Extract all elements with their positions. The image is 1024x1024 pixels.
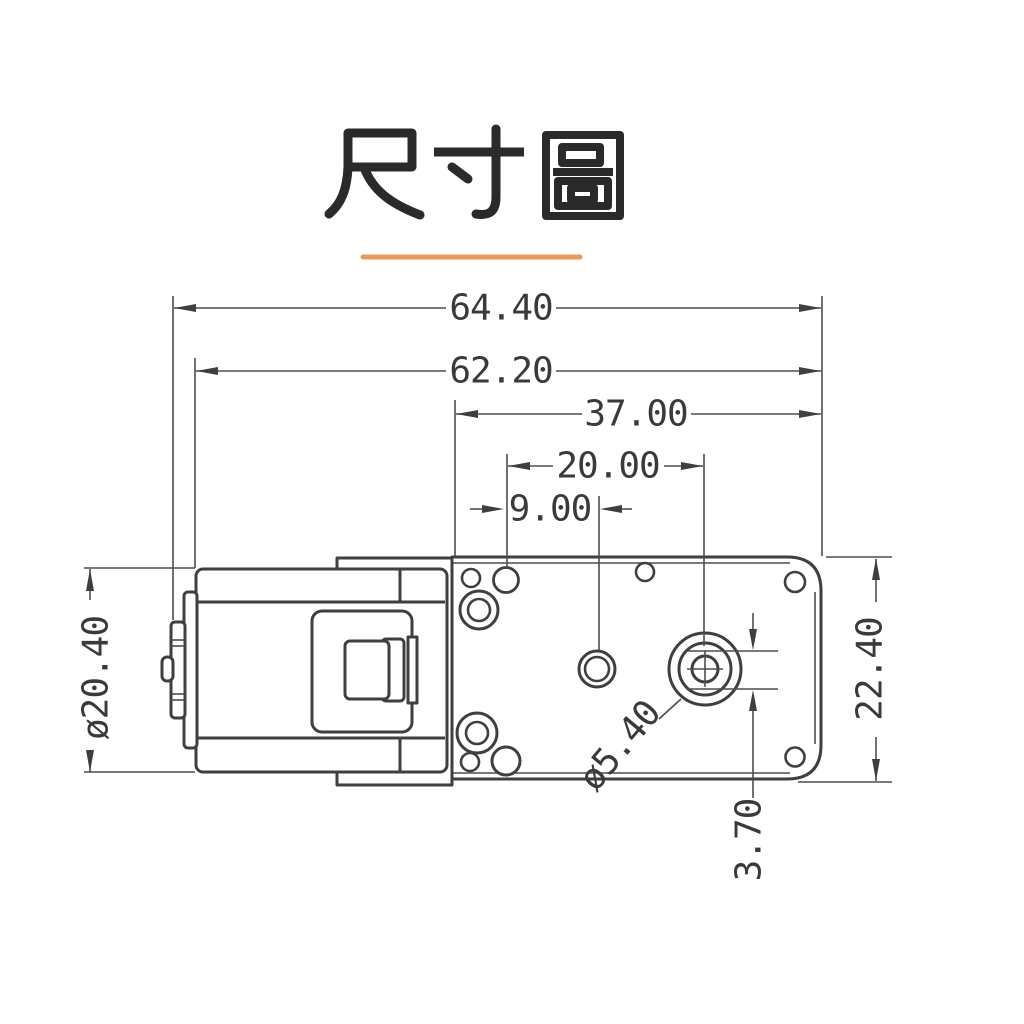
motor-side-view <box>162 558 452 785</box>
dim-hole-to-gear-center: 9.00 <box>470 489 632 530</box>
drawing-canvas: 64.40 62.20 37.00 20.00 <box>0 0 1024 1024</box>
dim-plate-height: 22.40 <box>850 558 891 781</box>
dim-label-shaft-to-gear-center: 20.00 <box>556 446 659 487</box>
screw-hole-top-right <box>785 572 805 592</box>
dim-label-plate-height: 22.40 <box>850 617 891 720</box>
connector-tab-left <box>345 641 389 699</box>
dim-label-motor-body-width: 62.20 <box>449 351 552 392</box>
dim-motor-body-width: 62.20 <box>196 351 821 392</box>
center-mounting-hole <box>579 651 615 687</box>
dim-label-overall-width: 64.40 <box>449 288 552 329</box>
connector-edge-strip <box>408 637 417 703</box>
motor-rear-shaft-bump <box>162 657 173 681</box>
dim-label-hole-to-gear-center: 9.00 <box>509 489 592 530</box>
dim-label-shaft-flat-width: 3.70 <box>729 799 770 882</box>
dim-shaft-to-gear-center: 20.00 <box>508 446 703 487</box>
dim-label-gearbox-plate-width: 37.00 <box>584 394 687 435</box>
dimension-diagram-page: 尺寸圖 <box>0 0 1024 1024</box>
dim-overall-width: 64.40 <box>174 288 821 329</box>
dim-label-motor-diameter: ø20.40 <box>76 616 117 740</box>
output-shaft <box>669 633 741 705</box>
dim-gearbox-plate-width: 37.00 <box>456 394 821 435</box>
screw-hole-bottom-right <box>786 748 805 767</box>
page-title-glyphs <box>329 129 620 216</box>
screw-hole-top-middle <box>636 563 654 581</box>
dim-motor-diameter: ø20.40 <box>76 569 117 772</box>
